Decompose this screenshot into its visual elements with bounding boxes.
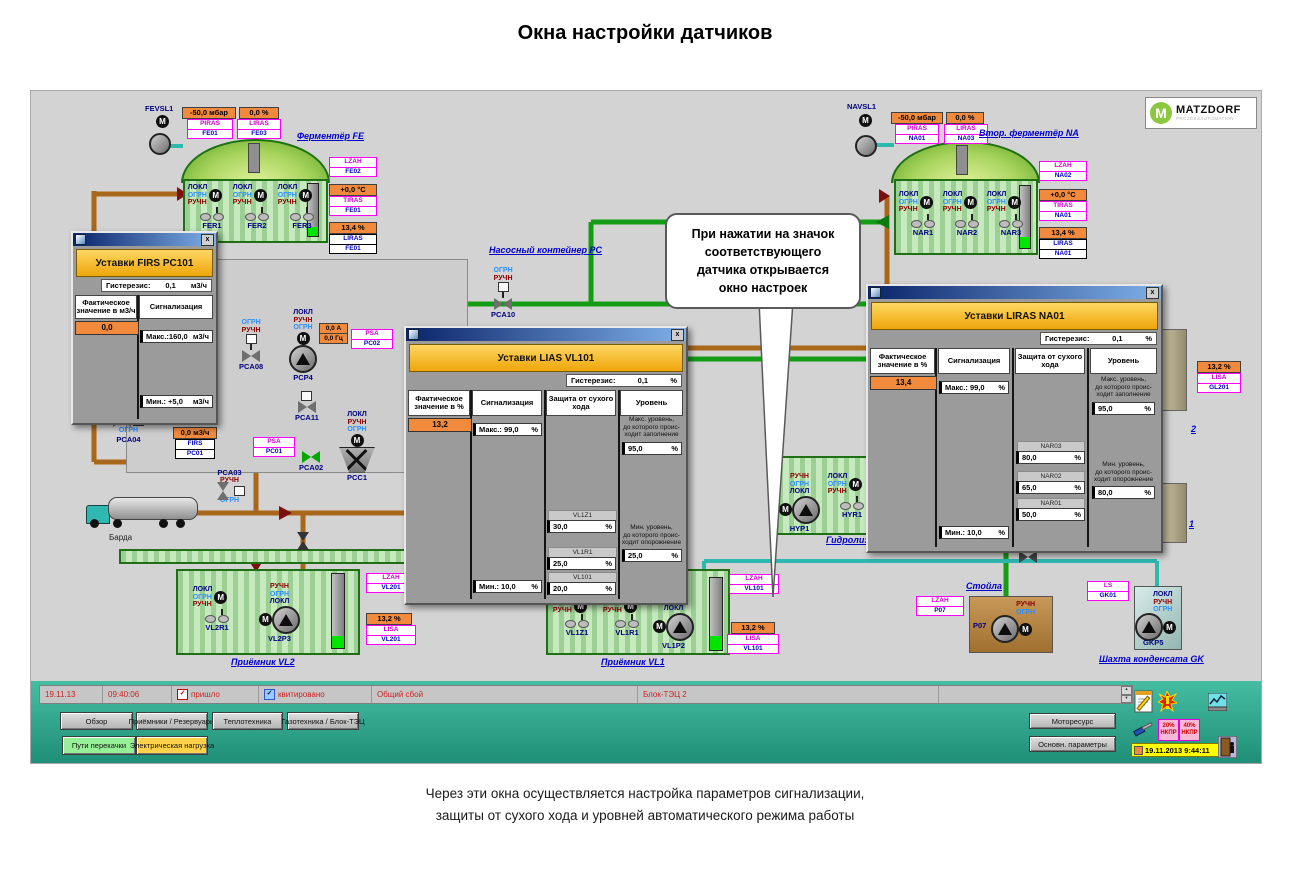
status-lokl: ЛОКЛ (790, 488, 810, 496)
column-header-level: Уровень (620, 390, 683, 416)
sensor-id: GK01 (1088, 591, 1128, 601)
equipment-label: PCC1 (347, 473, 367, 482)
sensor-id: FE03 (238, 129, 280, 139)
callout-bubble: При нажатии на значок соответствующего д… (665, 213, 861, 309)
sensor-tag: LS (1088, 582, 1128, 591)
sensor-tag: LIRAS (330, 235, 376, 244)
sensor-label-liras-fe03[interactable]: LIRASFE03 (237, 119, 281, 139)
motor-icon: M (653, 620, 666, 633)
sensor-tag: FIRS (176, 440, 214, 449)
sensor-tag: LISA (1198, 374, 1240, 383)
sensor-id: FE01 (330, 244, 376, 254)
min-level-note: Мин. уровень,до которого проис-ходит опо… (1090, 461, 1157, 484)
status-ogrn: ОГРН (193, 594, 213, 602)
dryrun-field[interactable]: 20,0% (547, 582, 616, 595)
alarm-ack-indicator[interactable]: ✓квитировано (259, 686, 372, 703)
pump-vl1p2[interactable]: ЛОКЛ M VL1P2 (653, 605, 694, 650)
fermenter-fe-title[interactable]: Ферментёр FE (297, 131, 364, 141)
sensor-id: P07 (917, 606, 963, 616)
status-ogrn: ОГРН (899, 199, 919, 207)
propeller-icon (840, 502, 864, 510)
dryrun-value: 65,0 (1022, 483, 1037, 492)
equipment-label: PCA03 (217, 468, 241, 477)
pump-gkp5[interactable]: M (1135, 613, 1176, 641)
mixer-nar1[interactable]: ЛОКЛОГРНРУЧН M NAR1 (897, 191, 935, 237)
gk-title[interactable]: Шахта конденсата GK (1099, 654, 1204, 664)
pump-icon (792, 496, 820, 524)
max-level-note: Макс. уровень,до которого проис-ходит за… (620, 416, 683, 439)
motor-icon: M (259, 613, 272, 626)
status-ogrn: ОГРН (233, 192, 253, 200)
status-lokl: ЛОКЛ (899, 191, 919, 199)
min-level-value: 80,0 (1098, 488, 1113, 497)
status-ogrn: ОГРН (943, 199, 963, 207)
logo-subtitle: PROZESSAUTOMATION (1176, 116, 1241, 121)
hysteresis-label: Гистерезис: (106, 281, 150, 290)
nav-button-electric-load[interactable]: Электрическая нагрузка (136, 736, 208, 755)
dryrun-field[interactable]: 25,0% (547, 557, 616, 570)
status-ogrn: ОГРН (119, 427, 138, 435)
caption-line-2: защиты от сухого хода и уровней автомати… (0, 808, 1290, 823)
mixer-vl2r1[interactable]: ЛОКЛОГРНРУЧН M VL2R1 (191, 586, 229, 632)
actuator-icon (301, 391, 312, 401)
hysteresis-field[interactable]: Гистерезис: 0,1 % (1040, 332, 1157, 345)
min-level-value: 25,0 (628, 551, 643, 560)
valve-vl2-inlet[interactable] (294, 535, 312, 547)
sensor-tag: LZAH (730, 575, 778, 584)
check-icon-blue: ✓ (264, 689, 275, 700)
nkpr-40-badge: 40%НКПР (1179, 719, 1200, 741)
callout-line: соответствующего (705, 243, 822, 261)
status-lokl: ЛОКЛ (1153, 591, 1173, 599)
sensor-label-lzah-na02[interactable]: LZAHNA02 (1039, 161, 1087, 181)
status-ruchn: РУЧН (188, 199, 208, 207)
pump-icon (289, 345, 317, 373)
value-vl2-level: 13,2 % (366, 613, 412, 625)
sensor-tag: PIRAS (896, 125, 938, 134)
equipment-label: NAR1 (913, 228, 933, 237)
status-lokl: ЛОКЛ (278, 184, 298, 192)
statusbar-spinner[interactable]: ▲ ▼ (1121, 686, 1132, 703)
mixer-nar2[interactable]: ЛОКЛОГРНРУЧН M NAR2 (941, 191, 979, 237)
actual-value: 13,4 (870, 376, 937, 390)
sensor-label-lisa-vl101[interactable]: LISAVL101 (727, 634, 779, 654)
valve-icon (242, 350, 260, 362)
status-ogrn: ОГРН (242, 319, 261, 327)
status-ruchn: РУЧН (943, 206, 963, 214)
dryrun-value: 20,0 (553, 584, 568, 593)
mixer-fer2[interactable]: ЛОКЛОГРНРУЧН M FER2 (231, 184, 269, 230)
min-level-field[interactable]: 80,0% (1092, 486, 1155, 499)
mixer-fer1[interactable]: ЛОКЛОГРНРУЧН M FER1 (186, 184, 224, 230)
truck-wheel (159, 519, 168, 528)
nav-button-main-params[interactable]: Основн. параметры (1029, 736, 1116, 752)
status-ruchn: РУЧН (603, 607, 622, 615)
propeller-icon (911, 220, 935, 228)
status-ogrn: ОГРН (278, 192, 298, 200)
window-icon (75, 234, 86, 245)
sensor-id: NA01 (1040, 249, 1086, 259)
window-icon (870, 287, 881, 298)
sensor-id: VL201 (367, 635, 415, 645)
right-tank-2 (1159, 329, 1187, 411)
hysteresis-unit: % (1145, 334, 1152, 343)
status-ruchn: РУЧН (193, 601, 213, 609)
sensor-label-lzah-p07[interactable]: LZAHP07 (916, 596, 964, 616)
dryrun-field[interactable]: 65,0% (1016, 481, 1085, 494)
equipment-label: VL2R1 (205, 623, 228, 632)
notepad-icon[interactable] (1133, 689, 1154, 719)
truck-wheel (113, 519, 122, 528)
callout-line: При нажатии на значок (692, 225, 835, 243)
sensor-id: NA01 (1040, 211, 1086, 221)
dialog-title: Уставки FIRS PC101 (76, 249, 213, 277)
sensor-id: VL101 (730, 584, 778, 594)
sensor-label-ls-gk01[interactable]: LSGK01 (1087, 581, 1129, 601)
macerator-pcc1[interactable]: ЛОКЛРУЧНОГРН M PCC1 (339, 411, 375, 482)
sensor-label-lisa-vl201[interactable]: LISAVL201 (366, 625, 416, 645)
equipment-label-p07: P07 (973, 621, 986, 630)
dialog-liras-na01: x Уставки LIRAS NA01 Гистерезис: 0,1 % Ф… (866, 284, 1163, 553)
value-na-level: 13,4 % (1039, 227, 1087, 239)
equipment-label-fevsl1: FEVSL1 (145, 104, 173, 113)
dryrun-field[interactable]: 30,0% (547, 520, 616, 533)
caption-line-1: Через эти окна осуществляется настройка … (0, 786, 1290, 801)
alarm-unit: Блок-ТЭЦ 2 (638, 686, 939, 703)
nkpr-20-badge: 20%НКПР (1158, 719, 1179, 741)
stable-title[interactable]: Стойла (966, 581, 1002, 591)
tank-vl2-levelbar (331, 573, 345, 649)
dryrun-value: 50,0 (1022, 510, 1037, 519)
mixer-fer3[interactable]: ЛОКЛОГРНРУЧН M FER3 (276, 184, 314, 230)
max-alarm-field[interactable]: Макс.: 99,0% (473, 423, 542, 436)
mixer-hyr1[interactable]: ЛОКЛОГРНРУЧН M HYR1 (826, 473, 864, 519)
motor-icon: M (214, 591, 227, 604)
sensor-id: NA02 (1040, 171, 1086, 181)
status-ogrn: ОГРН (347, 426, 366, 434)
propeller-icon (200, 213, 224, 221)
status-lokl: ЛОКЛ (233, 184, 253, 192)
status-ogrn: ОГРН (828, 481, 848, 489)
motor-icon: M (1008, 196, 1021, 209)
propeller-icon (615, 620, 639, 628)
sensor-label-lzah-fe02[interactable]: LZAHFE02 (329, 157, 377, 177)
fermenter-na-hatch (956, 145, 968, 175)
pump-icon (272, 606, 300, 634)
sensor-id: GL201 (1198, 383, 1240, 393)
hysteresis-value: 0,1 (1112, 334, 1122, 343)
sensor-tag: PIRAS (188, 120, 232, 129)
alarm-text: Общий сбой (372, 686, 638, 703)
propeller-icon (205, 615, 229, 623)
valve-icon (298, 401, 316, 413)
sensor-id: PC02 (352, 339, 392, 349)
sensor-label-firs-pc01[interactable]: FIRSPC01 (175, 439, 215, 459)
sensor-label-liras-fe01[interactable]: LIRASFE01 (329, 234, 377, 254)
nav-button-motor-resource[interactable]: Моторесурс (1029, 713, 1116, 729)
equipment-label: NAR3 (1001, 228, 1021, 237)
equipment-label: VL1Z1 (566, 628, 589, 637)
unit: % (605, 559, 612, 568)
dialog-title: Уставки LIRAS NA01 (871, 302, 1158, 330)
propeller-icon (999, 220, 1023, 228)
sensor-tag: LZAH (1040, 162, 1086, 171)
exit-door-icon[interactable] (1218, 736, 1237, 763)
min-label: Мин.: 10,0 (945, 528, 982, 537)
dialog-titlebar[interactable]: x (406, 328, 686, 341)
status-ruchn: РУЧН (294, 317, 313, 325)
motor-icon: M (779, 503, 792, 516)
logo-m-icon: M (1150, 102, 1172, 124)
nav-button-gas-chp[interactable]: Газотехника / Блок-ТЭЦ (287, 712, 359, 730)
logo-brand: MATZDORF (1176, 105, 1241, 116)
dialog-titlebar[interactable]: x (868, 286, 1161, 299)
status-ruchn: РУЧН (1153, 599, 1172, 607)
column-header-dryrun: Защита от сухого хода (546, 390, 616, 416)
motor-icon: M (964, 196, 977, 209)
blower-icon-navsl1[interactable] (855, 135, 877, 157)
valve-pca10[interactable]: ОГРНРУЧН PCA10 (491, 267, 515, 319)
column-header-actual: Фактическое значение в м3/ч (75, 295, 137, 319)
fermenter-fe-hatch (248, 143, 260, 173)
motor-icon-navsl1[interactable]: M (859, 114, 872, 127)
dryrun-value: 25,0 (553, 559, 568, 568)
actual-value: 13,2 (408, 418, 472, 432)
column-header-alarm: Сигнализация (472, 390, 542, 416)
pump-p07[interactable]: M (991, 615, 1032, 643)
sensor-tag: LISA (367, 626, 415, 635)
dialog-titlebar[interactable]: x (73, 233, 216, 246)
pump-pcp4[interactable]: ЛОКЛРУЧНОГРН M PCP4 (289, 309, 317, 382)
unit: % (531, 425, 538, 434)
callout-line: датчика открывается (697, 261, 829, 279)
sensor-label-lzah-vl101[interactable]: LZAHVL101 (729, 574, 779, 594)
sensor-id: PC01 (176, 449, 214, 459)
motor-icon: M (209, 189, 222, 202)
min-alarm-field[interactable]: Мин.: 10,0% (939, 526, 1009, 539)
min-alarm-field[interactable]: Мин.: +5,0м3/ч (140, 395, 213, 408)
sensor-id: VL101 (728, 644, 778, 654)
column-header-actual: Фактическое значение в % (408, 390, 470, 416)
blower-icon-fevsl1[interactable] (149, 133, 171, 155)
close-icon[interactable]: x (671, 329, 684, 341)
status-ruchn: РУЧН (494, 275, 513, 283)
equipment-label-navsl1: NAVSL1 (847, 102, 876, 111)
status-date: 19.11.13 (40, 686, 103, 703)
sensor-label-liras-na01[interactable]: LIRASNA01 (1039, 239, 1087, 259)
tank-vl2-title[interactable]: Приёмник VL2 (231, 657, 295, 667)
actual-value: 0,0 (75, 321, 139, 335)
valve-pca08[interactable]: ОГРНРУЧН PCA08 (239, 319, 263, 371)
trend-icon[interactable] (1208, 693, 1227, 716)
pump-vl2p3[interactable]: РУЧНОГРНЛОКЛ M VL2P3 (259, 583, 300, 643)
value-na-pressure: -50,0 мбар (891, 112, 943, 124)
nav-button-receivers[interactable]: Приёмники / Резервуары (136, 712, 208, 730)
actuator-icon (246, 334, 257, 344)
motor-icon: M (299, 189, 312, 202)
motor-letter: M (159, 117, 166, 126)
valve-pca03[interactable]: PCA03 РУЧН ОГРН (214, 468, 245, 504)
vendor-logo: M MATZDORF PROZESSAUTOMATION (1145, 97, 1257, 129)
value-fe-temp: +0,0 °C (329, 184, 377, 196)
max-level-field[interactable]: 95,0% (622, 442, 682, 455)
status-ruchn: РУЧН (270, 583, 289, 591)
sensor-id: FE01 (188, 129, 232, 139)
sensor-tag: LIRAS (238, 120, 280, 129)
equipment-label: PCA10 (491, 310, 515, 319)
nav-button-overview[interactable]: Обзор (60, 712, 133, 730)
equipment-label: PCP4 (293, 373, 313, 382)
status-lokl: ЛОКЛ (193, 586, 213, 594)
valve-pca02[interactable]: PCA02 (299, 451, 323, 472)
spin-up-icon[interactable]: ▲ (1121, 686, 1132, 695)
status-ogrn: ОГРН (270, 591, 289, 599)
status-ogrn: ОГРН (188, 192, 208, 200)
sensor-label-lisa-gl201[interactable]: LISAGL201 (1197, 373, 1241, 393)
min-unit: м3/ч (193, 397, 209, 406)
equipment-label: VL1P2 (662, 641, 685, 650)
hysteresis-unit: % (670, 376, 677, 385)
status-lokl: ЛОКЛ (943, 191, 963, 199)
status-ruchn: РУЧН (987, 206, 1007, 214)
callout-line: окно настроек (719, 279, 808, 297)
min-alarm-field[interactable]: Мин.: 10,0% (473, 580, 542, 593)
max-level-field[interactable]: 95,0% (1092, 402, 1155, 415)
value-pcp4-hz: 0,0 Гц (319, 333, 348, 344)
hydrolysis-title[interactable]: Гидролиз (826, 535, 869, 545)
alarm-burst-icon[interactable] (1158, 691, 1177, 718)
window-icon (408, 329, 419, 340)
close-icon[interactable]: x (201, 234, 214, 246)
close-icon[interactable]: x (1146, 287, 1159, 299)
hysteresis-field[interactable]: Гистерезис: 0,1 м3/ч (101, 279, 212, 292)
motor-icon: M (297, 332, 310, 345)
nav-button-heat[interactable]: Теплотехника (212, 712, 283, 730)
motor-icon: M (920, 196, 933, 209)
valve-icon (297, 532, 309, 550)
equipment-label: VL1R1 (615, 628, 638, 637)
status-ogrn: ОГРН (293, 324, 312, 332)
column-header-actual: Фактическое значение в % (870, 348, 935, 374)
sensor-id: FE01 (330, 206, 376, 216)
status-ruchn: РУЧН (348, 419, 367, 427)
sensor-label-piras-fe01[interactable]: PIRASFE01 (187, 119, 233, 139)
equipment-label: FER3 (292, 221, 311, 230)
motor-icon-fevsl1[interactable]: M (156, 115, 169, 128)
value-na-gas: 0,0 % (946, 112, 984, 124)
sensor-tag: LZAH (330, 158, 376, 167)
max-label: Макс.: 99,0 (945, 383, 985, 392)
check-icon-red: ✓ (177, 689, 188, 700)
max-level-value: 95,0 (628, 444, 643, 453)
propeller-icon (290, 213, 314, 221)
column-header-level: Уровень (1090, 348, 1157, 374)
sensor-label-psa-pc02[interactable]: PSAPC02 (351, 329, 393, 349)
dialog-lias-vl101: x Уставки LIAS VL101 Гистерезис: 0,1 % Ф… (404, 326, 688, 605)
nav-button-transfer-paths[interactable]: Пути перекачки (62, 736, 136, 755)
truck-label: Барда (109, 533, 132, 542)
sensor-tag: LIRAS (1040, 240, 1086, 249)
tool-icon[interactable] (1133, 719, 1154, 744)
status-ruchn: РУЧН (899, 206, 919, 214)
min-label: Мин.: 10,0 (479, 582, 516, 591)
pump-container-title[interactable]: Насосный контейнер PC (489, 245, 602, 255)
max-label: Макс.:160,0 (146, 332, 188, 341)
min-level-field[interactable]: 25,0% (622, 549, 682, 562)
max-alarm-field[interactable]: Макс.: 99,0% (939, 381, 1009, 394)
sensor-label-tiras-na01[interactable]: TIRASNA01 (1039, 201, 1087, 221)
tank-vl1-title[interactable]: Приёмник VL1 (601, 657, 665, 667)
status-lokl: ЛОКЛ (293, 309, 313, 317)
status-ruchn: РУЧН (242, 327, 261, 335)
value-vl1-level: 13,2 % (731, 622, 775, 634)
dryrun-value: 80,0 (1022, 453, 1037, 462)
hysteresis-field[interactable]: Гистерезис: 0,1 % (566, 374, 682, 387)
hysteresis-value: 0,1 (638, 376, 648, 385)
valve-pca11[interactable]: PCA11 (295, 391, 319, 422)
pump-hyp1[interactable]: РУЧНОГРНЛОКЛ M HYP1 (779, 473, 820, 533)
unit: % (1074, 483, 1081, 492)
pump-icon (666, 613, 694, 641)
alarm-came-indicator[interactable]: ✓пришло (172, 686, 259, 703)
spin-down-icon[interactable]: ▼ (1121, 695, 1132, 704)
status-lokl: ЛОКЛ (664, 605, 684, 613)
mixer-nar3[interactable]: ЛОКЛОГРНРУЧН M NAR3 (985, 191, 1023, 237)
right-tank-1 (1159, 483, 1187, 543)
equipment-label: NAR2 (957, 228, 977, 237)
status-ruchn: РУЧН (1016, 601, 1035, 609)
min-label: Мин.: +5,0 (146, 397, 183, 406)
hysteresis-value: 0,1 (165, 281, 175, 290)
dryrun-field[interactable]: 50,0% (1016, 508, 1085, 521)
unit: % (998, 383, 1005, 392)
sensor-label-piras-na01[interactable]: PIRASNA01 (895, 124, 939, 144)
valve-icon (302, 451, 320, 463)
fermenter-na-title[interactable]: Втор. ферментёр NA (979, 128, 1079, 138)
equipment-label: FER2 (247, 221, 266, 230)
equipment-label: PCA11 (295, 413, 319, 422)
truck-tank (108, 497, 198, 520)
right-tank-2-title: 2 (1191, 424, 1196, 434)
right-tank-1-title: 1 (1189, 519, 1194, 529)
value-fe-gas: 0,0 % (239, 107, 279, 119)
sensor-label-psa-pc01[interactable]: PSAPC01 (253, 437, 295, 457)
pump-icon (991, 615, 1019, 643)
motor-icon: M (1163, 621, 1176, 634)
status-ogrn: ОГРН (494, 267, 513, 275)
dialog-firs-pc101: x Уставки FIRS PC101 Гистерезис: 0,1 м3/… (71, 231, 218, 425)
sensor-tag: TIRAS (330, 197, 376, 206)
status-lokl: ЛОКЛ (828, 473, 848, 481)
max-level-note: Макс. уровень,до которого проис-ходит за… (1090, 376, 1157, 399)
dryrun-field[interactable]: 80,0% (1016, 451, 1085, 464)
valve-icon (494, 298, 512, 310)
sensor-tag: PSA (254, 438, 294, 447)
max-level-value: 95,0 (1098, 404, 1113, 413)
max-alarm-field[interactable]: Макс.:160,0м3/ч (140, 330, 213, 343)
equipment-label: VL2P3 (268, 634, 291, 643)
hysteresis-label: Гистерезис: (1045, 334, 1089, 343)
equipment-label: PCA02 (299, 463, 323, 472)
status-lokl: ЛОКЛ (347, 411, 367, 419)
sensor-label-tiras-fe01[interactable]: TIRASFE01 (329, 196, 377, 216)
valve-icon (217, 482, 229, 500)
unit: % (1074, 453, 1081, 462)
date-icon (1134, 746, 1143, 755)
sensor-tag: LISA (728, 635, 778, 644)
status-lokl: ЛОКЛ (270, 598, 290, 606)
equipment-label: HYR1 (842, 510, 862, 519)
